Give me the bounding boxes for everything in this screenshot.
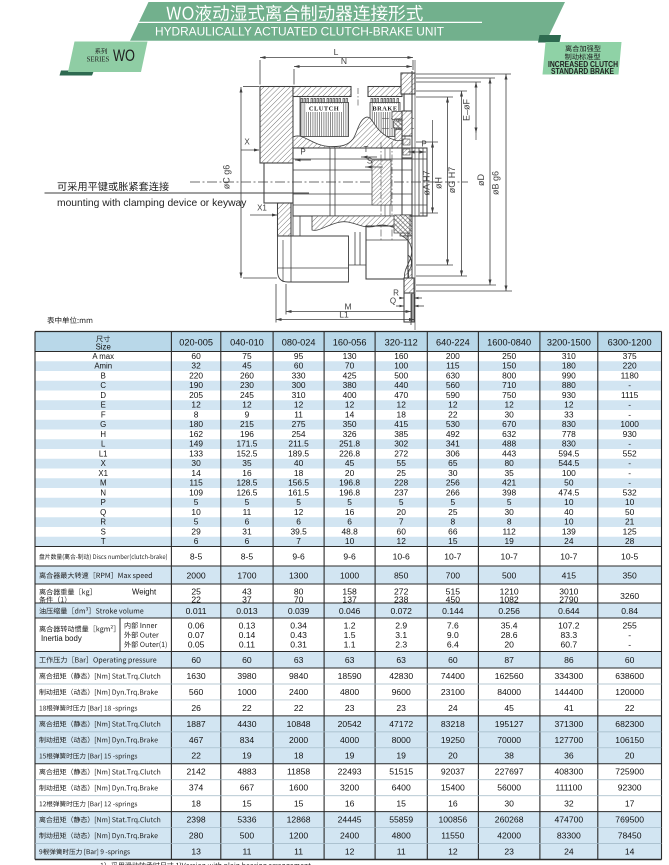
svg-text:12: 12 <box>504 400 514 410</box>
svg-text:11858: 11858 <box>287 767 310 777</box>
svg-text:400: 400 <box>343 390 357 400</box>
svg-text:14: 14 <box>345 409 355 419</box>
svg-text:162560: 162560 <box>495 671 524 681</box>
svg-text:488: 488 <box>502 439 516 449</box>
svg-text:3200: 3200 <box>340 783 359 793</box>
svg-text:8-5: 8-5 <box>241 551 254 561</box>
svg-text:080-024: 080-024 <box>282 338 316 348</box>
svg-text:930: 930 <box>562 390 576 400</box>
svg-text:23100: 23100 <box>441 687 465 697</box>
svg-text:256: 256 <box>446 478 460 488</box>
svg-text:60: 60 <box>242 655 252 665</box>
svg-text:T: T <box>364 145 369 154</box>
svg-text:-: - <box>628 400 631 410</box>
svg-text:L: L <box>334 47 339 57</box>
svg-text:137: 137 <box>342 594 357 604</box>
svg-text:55: 55 <box>397 458 407 468</box>
svg-text:4000: 4000 <box>340 735 359 745</box>
svg-text:-: - <box>628 409 631 419</box>
svg-text:24: 24 <box>564 536 574 546</box>
svg-text:18590: 18590 <box>338 671 362 681</box>
svg-text:B: B <box>101 371 106 380</box>
svg-text:øH: øH <box>434 177 444 189</box>
svg-text:11: 11 <box>242 846 251 856</box>
svg-text:334300: 334300 <box>555 671 584 681</box>
svg-text:149: 149 <box>189 439 203 449</box>
svg-text:8-5: 8-5 <box>190 551 203 561</box>
svg-text:35.4: 35.4 <box>501 620 518 630</box>
svg-text:638600: 638600 <box>615 671 644 681</box>
svg-text:12: 12 <box>294 507 304 517</box>
svg-text:2000: 2000 <box>187 570 206 580</box>
svg-text:øA H7: øA H7 <box>422 170 432 195</box>
svg-text:3260: 3260 <box>620 591 639 601</box>
svg-text:750: 750 <box>502 390 516 400</box>
svg-text:1.1: 1.1 <box>344 639 356 649</box>
svg-text:10: 10 <box>564 517 574 527</box>
svg-text:S: S <box>367 157 372 166</box>
svg-text:24445: 24445 <box>338 814 362 824</box>
svg-text:2400: 2400 <box>289 687 308 697</box>
svg-text:E–øF: E–øF <box>462 99 472 122</box>
svg-text:WO: WO <box>113 46 135 65</box>
svg-text:Inertia body: Inertia body <box>41 634 82 643</box>
svg-text:109: 109 <box>189 487 203 497</box>
svg-text:2398: 2398 <box>187 814 206 824</box>
svg-text:0.644: 0.644 <box>558 606 580 616</box>
svg-text:18: 18 <box>397 409 407 419</box>
svg-text:9-6: 9-6 <box>292 551 305 561</box>
svg-text:398: 398 <box>502 487 516 497</box>
svg-text:1082: 1082 <box>500 594 519 604</box>
svg-text:-: - <box>628 468 631 478</box>
svg-text:L1: L1 <box>99 449 108 458</box>
svg-text:øG H7: øG H7 <box>447 167 457 194</box>
svg-text:HYDRAULICALLY ACTUATED CLUTCH-: HYDRAULICALLY ACTUATED CLUTCH-BRAKE UNIT <box>155 26 444 39</box>
svg-text:700: 700 <box>446 570 461 580</box>
svg-text:245: 245 <box>240 390 254 400</box>
svg-text:415: 415 <box>562 570 577 580</box>
svg-text:500: 500 <box>394 370 408 380</box>
svg-text:125: 125 <box>623 526 637 536</box>
svg-text:22: 22 <box>191 594 201 604</box>
svg-text:111100: 111100 <box>555 783 582 793</box>
svg-text:32: 32 <box>191 361 201 371</box>
svg-text:60: 60 <box>448 655 458 665</box>
svg-text:1630: 1630 <box>187 671 206 681</box>
svg-text:30: 30 <box>504 507 514 517</box>
svg-text:Amin: Amin <box>94 362 112 371</box>
svg-text:0.31: 0.31 <box>290 639 307 649</box>
svg-text:272: 272 <box>394 448 408 458</box>
svg-text:161.5: 161.5 <box>288 487 309 497</box>
svg-text:38: 38 <box>504 751 514 761</box>
svg-text:37: 37 <box>242 594 252 604</box>
svg-text:83218: 83218 <box>441 719 465 729</box>
svg-text:9.0: 9.0 <box>447 630 459 640</box>
svg-text:139: 139 <box>562 526 576 536</box>
svg-text:Q: Q <box>390 297 396 306</box>
svg-text:R: R <box>100 518 106 527</box>
svg-text:66: 66 <box>448 526 458 536</box>
svg-text:øB g6: øB g6 <box>491 171 501 195</box>
svg-text:0.11: 0.11 <box>239 639 255 649</box>
svg-text:7: 7 <box>296 536 301 546</box>
svg-text:29: 29 <box>191 526 201 536</box>
svg-text:16: 16 <box>345 507 355 517</box>
svg-text:12: 12 <box>191 400 201 410</box>
svg-text:830: 830 <box>562 419 576 429</box>
svg-text:310: 310 <box>292 390 306 400</box>
svg-text:560: 560 <box>446 380 460 390</box>
svg-text:30: 30 <box>448 468 458 478</box>
svg-text:20: 20 <box>625 751 635 761</box>
svg-text:22493: 22493 <box>338 767 362 777</box>
svg-text:450: 450 <box>446 594 461 604</box>
svg-text:254: 254 <box>292 429 306 439</box>
svg-text:23: 23 <box>504 846 514 856</box>
svg-text:56000: 56000 <box>497 783 521 793</box>
svg-text:20542: 20542 <box>338 719 362 729</box>
svg-text:60: 60 <box>294 361 304 371</box>
svg-text:35: 35 <box>504 468 514 478</box>
svg-text:200: 200 <box>446 351 460 361</box>
svg-text:0.84: 0.84 <box>621 606 638 616</box>
svg-text:22: 22 <box>242 703 252 713</box>
svg-text:40: 40 <box>564 507 574 517</box>
svg-text:23: 23 <box>345 703 355 713</box>
svg-text:D: D <box>100 391 106 400</box>
svg-text:0.013: 0.013 <box>236 606 258 616</box>
svg-text:21: 21 <box>625 517 635 527</box>
svg-text:H: H <box>100 430 106 439</box>
svg-text:1887: 1887 <box>187 719 206 729</box>
svg-text:830: 830 <box>562 439 576 449</box>
svg-text:0.14: 0.14 <box>239 630 256 640</box>
svg-text:640-224: 640-224 <box>436 338 470 348</box>
svg-text:260: 260 <box>240 370 254 380</box>
svg-text:107.2: 107.2 <box>558 620 580 630</box>
svg-text:-: - <box>628 639 631 649</box>
svg-text:15: 15 <box>396 799 406 809</box>
svg-text:60: 60 <box>625 655 635 665</box>
svg-text:530: 530 <box>446 419 460 429</box>
svg-text:115: 115 <box>446 361 460 371</box>
svg-text:106150: 106150 <box>615 735 644 745</box>
svg-text:8000: 8000 <box>392 735 411 745</box>
svg-text:6: 6 <box>296 517 301 527</box>
svg-text:50: 50 <box>625 507 635 517</box>
svg-text:15: 15 <box>294 799 304 809</box>
svg-text:0.046: 0.046 <box>339 606 361 616</box>
svg-text:12: 12 <box>564 400 574 410</box>
svg-text:6: 6 <box>245 517 250 527</box>
svg-text:83300: 83300 <box>557 830 581 840</box>
svg-text:5: 5 <box>451 497 456 507</box>
svg-text:100856: 100856 <box>439 814 468 824</box>
svg-text:19: 19 <box>242 751 252 761</box>
svg-text:18: 18 <box>294 468 304 478</box>
svg-text:1600: 1600 <box>289 783 308 793</box>
svg-text:532: 532 <box>623 487 637 497</box>
svg-text:100: 100 <box>394 361 408 371</box>
svg-text:320-112: 320-112 <box>385 338 418 348</box>
svg-text:9840: 9840 <box>289 671 308 681</box>
svg-text:22: 22 <box>294 703 304 713</box>
svg-text:14: 14 <box>625 846 635 856</box>
svg-text:0.144: 0.144 <box>442 606 464 616</box>
svg-text:12868: 12868 <box>287 814 311 824</box>
svg-text:040-010: 040-010 <box>230 338 264 348</box>
svg-text:31: 31 <box>242 526 252 536</box>
svg-text:20: 20 <box>345 468 355 478</box>
svg-text:-: - <box>628 478 631 488</box>
svg-text:375: 375 <box>623 351 637 361</box>
svg-text:408300: 408300 <box>555 767 584 777</box>
svg-text:L: L <box>101 440 106 449</box>
svg-text:20: 20 <box>397 507 407 517</box>
svg-text:øD: øD <box>476 174 486 186</box>
svg-text:19: 19 <box>345 751 355 761</box>
svg-text:26: 26 <box>191 703 201 713</box>
svg-text:55859: 55859 <box>389 814 413 824</box>
svg-text:11: 11 <box>294 409 303 419</box>
svg-text:162: 162 <box>189 429 203 439</box>
svg-text:24: 24 <box>564 846 574 856</box>
svg-text:238: 238 <box>394 594 409 604</box>
svg-text:180: 180 <box>189 419 203 429</box>
svg-text:552: 552 <box>623 448 637 458</box>
svg-text:144400: 144400 <box>555 687 584 697</box>
svg-text:500: 500 <box>240 830 255 840</box>
svg-text:594.5: 594.5 <box>558 448 579 458</box>
svg-text:22: 22 <box>625 703 635 713</box>
svg-text:P: P <box>300 148 305 157</box>
svg-text:33: 33 <box>564 409 574 419</box>
svg-text:0.05: 0.05 <box>188 639 205 649</box>
svg-text:250: 250 <box>502 351 516 361</box>
svg-text:22: 22 <box>191 751 201 761</box>
svg-text:196.8: 196.8 <box>339 487 360 497</box>
svg-text:850: 850 <box>394 570 409 580</box>
svg-text:16: 16 <box>345 799 355 809</box>
svg-text:74400: 74400 <box>441 671 465 681</box>
svg-text:300: 300 <box>292 380 306 390</box>
svg-text:-: - <box>628 458 631 468</box>
svg-text:N: N <box>100 488 106 497</box>
svg-text:6300-1200: 6300-1200 <box>608 338 652 348</box>
svg-text:670: 670 <box>502 419 516 429</box>
svg-text:341: 341 <box>446 439 460 449</box>
svg-text:19250: 19250 <box>441 735 465 745</box>
svg-text:260268: 260268 <box>495 814 524 824</box>
svg-text:190: 190 <box>189 380 203 390</box>
svg-text:6400: 6400 <box>392 783 411 793</box>
svg-text:30: 30 <box>504 409 514 419</box>
svg-text:4800: 4800 <box>340 687 359 697</box>
svg-text:226.8: 226.8 <box>339 448 360 458</box>
svg-text:251.8: 251.8 <box>339 439 360 449</box>
svg-text:X: X <box>101 459 107 468</box>
svg-text:12: 12 <box>294 400 304 410</box>
svg-text:500: 500 <box>502 570 517 580</box>
svg-text:2.3: 2.3 <box>395 639 407 649</box>
svg-text:2142: 2142 <box>187 767 206 777</box>
svg-text:11: 11 <box>294 846 303 856</box>
svg-text:83.3: 83.3 <box>560 630 577 640</box>
svg-text:0.13: 0.13 <box>239 620 256 630</box>
svg-text:22: 22 <box>448 409 458 419</box>
svg-text:421: 421 <box>502 478 516 488</box>
svg-text:11550: 11550 <box>441 830 464 840</box>
svg-text:92037: 92037 <box>441 767 465 777</box>
svg-text:112: 112 <box>502 526 516 536</box>
svg-text:5: 5 <box>245 497 250 507</box>
svg-text:15400: 15400 <box>441 783 465 793</box>
svg-text:725900: 725900 <box>615 767 644 777</box>
svg-text:10: 10 <box>564 497 574 507</box>
svg-text:87: 87 <box>504 655 514 665</box>
svg-text:5: 5 <box>347 497 352 507</box>
svg-text:8: 8 <box>451 517 456 527</box>
svg-text:23: 23 <box>396 703 406 713</box>
svg-text:60: 60 <box>191 351 201 361</box>
svg-text:275: 275 <box>292 419 306 429</box>
svg-text:470: 470 <box>394 390 408 400</box>
svg-text:8: 8 <box>507 517 512 527</box>
svg-text:1000: 1000 <box>620 419 639 429</box>
svg-text:160: 160 <box>394 351 408 361</box>
svg-text:Size: Size <box>96 343 111 352</box>
svg-text:415: 415 <box>394 419 408 429</box>
svg-text:70: 70 <box>345 361 355 371</box>
svg-text:205: 205 <box>189 390 203 400</box>
svg-text:156.5: 156.5 <box>288 478 309 488</box>
svg-text:440: 440 <box>394 380 408 390</box>
svg-text:590: 590 <box>446 390 460 400</box>
svg-text:152.5: 152.5 <box>236 448 257 458</box>
svg-text:220: 220 <box>189 370 203 380</box>
svg-text:350: 350 <box>343 419 357 429</box>
svg-text:M: M <box>100 479 107 488</box>
svg-text:1000: 1000 <box>237 687 256 697</box>
svg-text:39.5: 39.5 <box>290 526 307 536</box>
svg-text:10: 10 <box>625 497 635 507</box>
svg-text:1300: 1300 <box>289 570 308 580</box>
svg-text:9-6: 9-6 <box>343 551 356 561</box>
svg-text:130: 130 <box>343 351 357 361</box>
svg-text:20: 20 <box>504 639 514 649</box>
svg-text:7: 7 <box>399 517 404 527</box>
svg-text:10-7: 10-7 <box>444 551 461 561</box>
svg-text:13: 13 <box>191 846 201 856</box>
svg-text:0.072: 0.072 <box>390 606 412 616</box>
svg-text:50: 50 <box>564 478 574 488</box>
svg-text:63: 63 <box>345 655 355 665</box>
svg-text:40: 40 <box>294 458 304 468</box>
svg-text:6: 6 <box>347 517 352 527</box>
svg-text:12: 12 <box>448 846 458 856</box>
svg-text:5: 5 <box>194 497 199 507</box>
svg-text:302: 302 <box>394 439 408 449</box>
svg-text:11: 11 <box>243 507 252 517</box>
svg-text:280: 280 <box>189 830 204 840</box>
svg-text:øC g6: øC g6 <box>222 165 232 190</box>
svg-text:171.5: 171.5 <box>236 439 257 449</box>
svg-text:12: 12 <box>397 400 407 410</box>
svg-text:12: 12 <box>345 846 355 856</box>
svg-text:266: 266 <box>446 487 460 497</box>
svg-text:0.039: 0.039 <box>288 606 310 616</box>
svg-text:380: 380 <box>343 380 357 390</box>
svg-text:492: 492 <box>446 429 460 439</box>
svg-text:3980: 3980 <box>237 671 256 681</box>
svg-text:560: 560 <box>189 687 204 697</box>
svg-text:24: 24 <box>448 703 458 713</box>
svg-text:2790: 2790 <box>559 594 578 604</box>
svg-text:C: C <box>100 381 106 390</box>
svg-text:1200: 1200 <box>289 830 308 840</box>
svg-text:STANDARD BRAKE: STANDARD BRAKE <box>551 67 615 76</box>
svg-text:86: 86 <box>564 655 574 665</box>
svg-text:9600: 9600 <box>392 687 411 697</box>
svg-text:228: 228 <box>394 478 408 488</box>
svg-text:41: 41 <box>564 703 574 713</box>
svg-text:128.5: 128.5 <box>236 478 257 488</box>
svg-text:18: 18 <box>191 799 201 809</box>
svg-text:1000: 1000 <box>340 570 359 580</box>
svg-text:80: 80 <box>504 458 514 468</box>
svg-text:P: P <box>101 498 106 507</box>
svg-text:800: 800 <box>502 370 516 380</box>
svg-text:16: 16 <box>448 799 458 809</box>
svg-text:10: 10 <box>191 507 201 517</box>
svg-text:4430: 4430 <box>237 719 256 729</box>
svg-text:467: 467 <box>189 735 204 745</box>
svg-text:28.6: 28.6 <box>501 630 518 640</box>
svg-text:14: 14 <box>191 468 201 478</box>
svg-text:115: 115 <box>189 478 203 488</box>
svg-text:11: 11 <box>397 846 406 856</box>
svg-text:127700: 127700 <box>555 735 584 745</box>
svg-text:12: 12 <box>345 400 355 410</box>
svg-text:180: 180 <box>562 361 576 371</box>
svg-text:P: P <box>421 140 426 149</box>
svg-text:215: 215 <box>240 419 254 429</box>
svg-text:0.06: 0.06 <box>188 620 205 630</box>
svg-text:1600-0840: 1600-0840 <box>487 338 531 348</box>
svg-text:42830: 42830 <box>389 671 413 681</box>
svg-text:L1: L1 <box>339 310 349 320</box>
svg-text:10: 10 <box>345 536 355 546</box>
svg-text:10-7: 10-7 <box>560 551 577 561</box>
svg-text:120000: 120000 <box>615 687 644 697</box>
svg-text:880: 880 <box>562 380 576 390</box>
svg-text:1115: 1115 <box>621 390 639 400</box>
svg-text:12: 12 <box>448 400 458 410</box>
svg-text:6: 6 <box>245 536 250 546</box>
svg-text:189.5: 189.5 <box>288 448 309 458</box>
svg-text:930: 930 <box>623 429 637 439</box>
svg-text:-: - <box>628 630 631 640</box>
svg-text:10-7: 10-7 <box>501 551 518 561</box>
svg-text:6.4: 6.4 <box>447 639 459 649</box>
svg-text:60.7: 60.7 <box>560 639 577 649</box>
svg-text:X1: X1 <box>98 469 108 478</box>
svg-text:84000: 84000 <box>497 687 521 697</box>
svg-text:385: 385 <box>394 429 408 439</box>
svg-text:3200-1500: 3200-1500 <box>547 338 591 348</box>
